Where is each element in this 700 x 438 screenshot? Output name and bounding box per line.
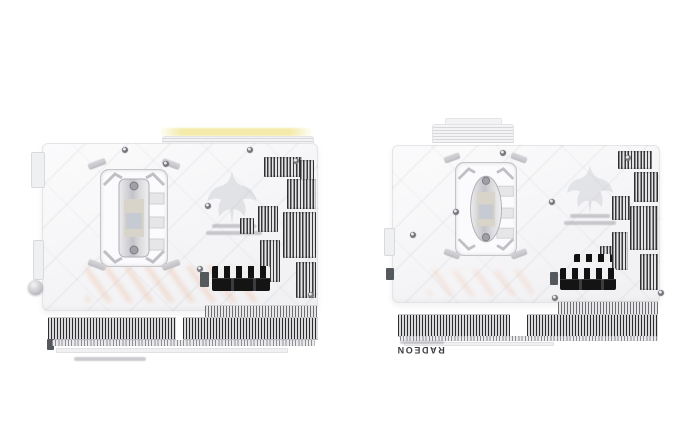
backplate-screw — [658, 290, 664, 296]
gpu-card-right: RADEON — [0, 0, 700, 438]
backplate-screw — [500, 150, 506, 156]
io-bracket-edge — [384, 228, 395, 256]
vent-slats — [618, 151, 652, 169]
product-photo-canvas: RADEON — [0, 0, 700, 438]
vent-slats — [612, 232, 628, 270]
power-connectors — [560, 268, 616, 290]
eagle-emblem-icon — [565, 160, 615, 218]
heatsink-fins — [527, 314, 658, 337]
heatsink-top-ridge — [432, 124, 514, 143]
vent-slats — [640, 254, 658, 290]
backplate-screw — [453, 209, 459, 215]
gpu-mounting-bracket — [455, 162, 517, 256]
gpu-die-cutout — [455, 162, 517, 256]
micro-text-line — [570, 214, 610, 218]
connector-side-block — [550, 272, 558, 285]
backplate-screw — [549, 199, 555, 205]
backplate-screw — [625, 155, 631, 161]
radeon-edge-text: RADEON — [396, 345, 445, 355]
io-bracket-notch — [386, 268, 394, 280]
backplate-screw — [410, 232, 416, 238]
power-connector-pins — [574, 254, 612, 262]
copper-reflection — [428, 270, 533, 296]
vent-slats — [634, 172, 658, 202]
vent-slats — [630, 206, 658, 250]
micro-text-line — [564, 221, 616, 225]
edge-label-blur — [400, 341, 444, 344]
power-connector-pins — [560, 268, 616, 279]
heatsink-fins — [398, 314, 510, 337]
vent-slats — [612, 196, 630, 220]
power-connector-body — [560, 279, 616, 290]
